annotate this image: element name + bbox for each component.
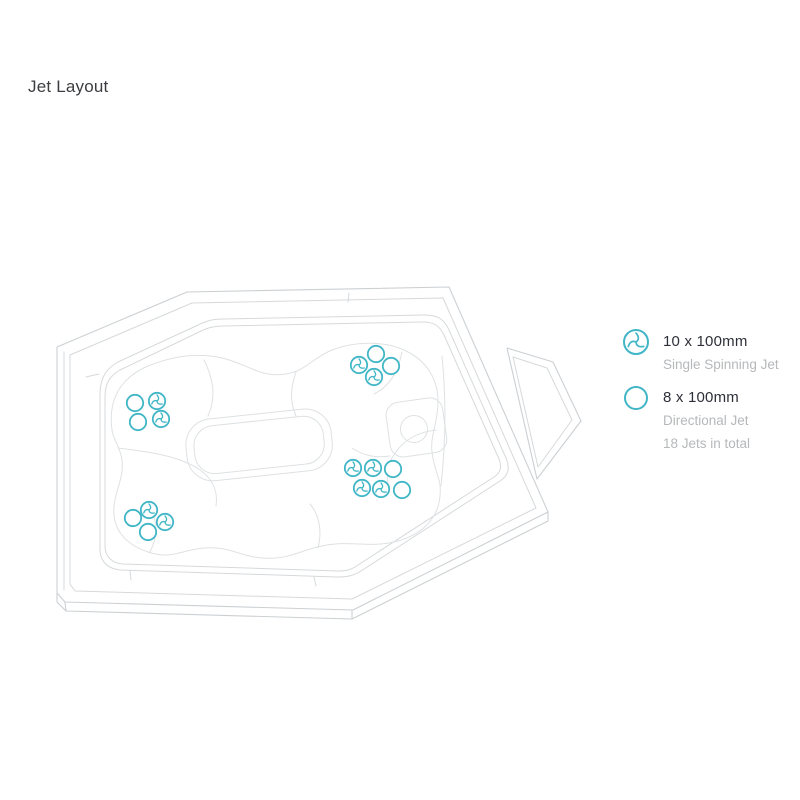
filter-lid [384, 396, 448, 458]
directional-jet-marker [625, 387, 647, 409]
jet-layer [125, 346, 410, 540]
spinning-jet-type: Single Spinning Jet [663, 354, 779, 375]
single-spinning-jet-icon [622, 328, 650, 356]
spinning-jet-size: 10 x 100mm [663, 332, 779, 352]
tub-inner-rim [100, 315, 508, 577]
spinning-jet-marker [624, 330, 648, 354]
spinning-jet-marker [351, 357, 367, 373]
tub-outer-shell [57, 287, 548, 619]
spinning-jet-marker [366, 369, 382, 385]
directional-jet-marker [394, 482, 410, 498]
footwell [183, 406, 335, 483]
spinning-jet-marker [149, 393, 165, 409]
product-page: Jet Layout [0, 0, 800, 800]
spinning-jet-marker [153, 411, 169, 427]
directional-jet-icon [622, 384, 650, 412]
spinning-jet-marker [141, 502, 157, 518]
jet-legend: 10 x 100mm Single Spinning Jet 8 x 100mm… [622, 328, 800, 454]
directional-jet-marker [385, 461, 401, 477]
spinning-jet-marker [157, 514, 173, 530]
corner-step [507, 348, 581, 479]
spinning-jet-marker [345, 460, 361, 476]
legend-item-directional-jet: 8 x 100mm Directional Jet 18 Jets in tot… [622, 384, 800, 454]
legend-item-spinning-jet: 10 x 100mm Single Spinning Jet [622, 328, 800, 375]
directional-jet-size: 8 x 100mm [663, 388, 750, 408]
directional-jet-marker [127, 395, 143, 411]
directional-jet-type: Directional Jet [663, 410, 750, 431]
spinning-jet-marker [365, 460, 381, 476]
jets-total: 18 Jets in total [663, 433, 750, 454]
spinning-jet-marker [373, 481, 389, 497]
directional-jet-marker [383, 358, 399, 374]
directional-jet-marker [130, 414, 146, 430]
directional-jet-marker [140, 524, 156, 540]
directional-jet-marker [125, 510, 141, 526]
directional-jet-marker [368, 346, 384, 362]
spinning-jet-marker [354, 480, 370, 496]
